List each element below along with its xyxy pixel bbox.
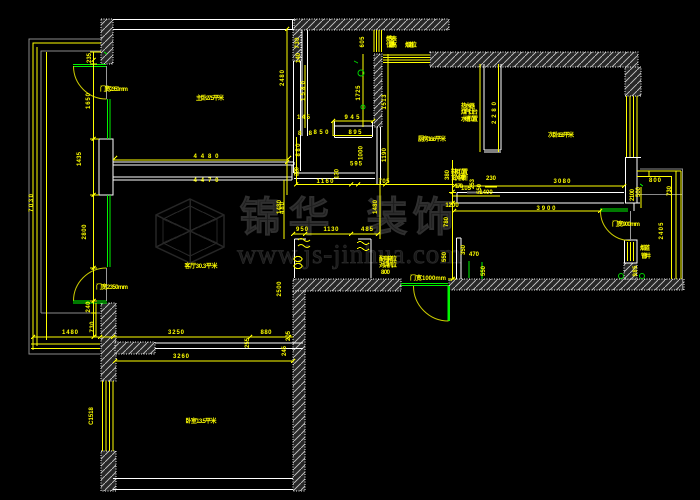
svg-text:605: 605 (360, 36, 366, 48)
svg-text:595: 595 (350, 162, 363, 168)
svg-text:253: 253 (470, 178, 476, 189)
svg-text:850: 850 (314, 130, 330, 136)
svg-text:240: 240 (86, 301, 92, 313)
svg-text:3080: 3080 (554, 179, 572, 185)
svg-text:配电箱位: 配电箱位 (379, 255, 397, 263)
svg-text:对讲机位: 对讲机位 (379, 261, 397, 269)
svg-text:管井: 管井 (641, 252, 651, 260)
svg-text:950: 950 (296, 227, 309, 233)
svg-text:550: 550 (481, 265, 487, 276)
svg-text:2800: 2800 (82, 224, 88, 240)
svg-text:1000: 1000 (359, 145, 365, 160)
svg-text:880: 880 (261, 330, 273, 336)
svg-text:730: 730 (667, 185, 673, 196)
svg-text:1580: 1580 (301, 80, 307, 101)
svg-text:1480: 1480 (373, 199, 379, 214)
svg-text:锦: 锦 (240, 194, 281, 240)
svg-text:主卧27.5平米: 主卧27.5平米 (196, 94, 224, 102)
svg-text:235: 235 (87, 52, 93, 63)
svg-text:烟道: 烟道 (640, 244, 650, 252)
svg-text:780: 780 (444, 216, 450, 227)
svg-text:www.js-jinhua.com: www.js-jinhua.com (237, 239, 461, 269)
svg-text:华: 华 (289, 194, 330, 240)
svg-text:热水器: 热水器 (461, 102, 476, 110)
svg-text:3900: 3900 (537, 206, 557, 212)
svg-text:烟道位: 烟道位 (405, 41, 417, 49)
svg-text:鞋柜位置: 鞋柜位置 (451, 168, 468, 176)
svg-text:245: 245 (282, 345, 288, 356)
svg-text:1435: 1435 (77, 151, 83, 166)
svg-text:255: 255 (245, 337, 251, 348)
svg-text:1200: 1200 (445, 203, 459, 209)
svg-text:1190: 1190 (382, 147, 388, 162)
svg-text:800: 800 (649, 178, 662, 184)
svg-text:230: 230 (486, 176, 497, 182)
svg-text:次卧15.6平米: 次卧15.6平米 (548, 131, 574, 139)
svg-text:卧室13.5平米: 卧室13.5平米 (186, 417, 217, 425)
svg-text:140: 140 (296, 52, 302, 63)
svg-text:位置高: 位置高 (386, 41, 397, 49)
svg-text:水槽位置: 水槽位置 (461, 115, 478, 123)
svg-text:门宽1000mm: 门宽1000mm (410, 274, 446, 282)
svg-text:2405: 2405 (659, 222, 665, 240)
svg-text:985: 985 (633, 265, 639, 277)
svg-text:1480: 1480 (277, 199, 283, 214)
svg-text:470: 470 (469, 252, 480, 258)
svg-text:130: 130 (335, 168, 341, 179)
svg-text:800: 800 (381, 270, 391, 276)
svg-text:1725: 1725 (356, 85, 362, 101)
svg-text:玄关隔断: 玄关隔断 (451, 174, 468, 182)
svg-text:730: 730 (295, 37, 301, 49)
svg-text:1650: 1650 (86, 92, 92, 109)
svg-text:945: 945 (345, 115, 361, 121)
svg-text:550: 550 (442, 251, 448, 262)
svg-text:1513: 1513 (382, 94, 388, 110)
svg-text:2500: 2500 (277, 281, 283, 297)
svg-text:170: 170 (455, 184, 464, 190)
svg-text:145: 145 (297, 115, 311, 121)
svg-text:饰: 饰 (413, 194, 454, 240)
svg-text:燃气表: 燃气表 (386, 35, 398, 43)
svg-text:220: 220 (295, 166, 301, 176)
svg-text:7030: 7030 (29, 193, 35, 212)
svg-text:1160: 1160 (317, 179, 335, 185)
svg-text:2480: 2480 (280, 69, 286, 86)
svg-text:3250: 3250 (168, 330, 185, 336)
svg-text:350: 350 (461, 244, 467, 255)
svg-text:煤气灶台: 煤气灶台 (461, 108, 478, 116)
svg-text:485: 485 (361, 227, 374, 233)
svg-text:880: 880 (296, 143, 302, 157)
svg-text:895: 895 (349, 130, 363, 136)
svg-text:2100: 2100 (630, 188, 636, 201)
svg-text:门宽900mm: 门宽900mm (612, 220, 640, 228)
svg-text:205: 205 (286, 330, 292, 341)
svg-text:500: 500 (636, 186, 642, 197)
svg-text:1130: 1130 (324, 227, 340, 233)
svg-text:730: 730 (90, 321, 96, 333)
svg-text:客厅30.3平米: 客厅30.3平米 (184, 262, 218, 270)
svg-text:厨房16.6平米: 厨房16.6平米 (418, 135, 446, 143)
svg-text:550: 550 (477, 183, 483, 194)
svg-text:C1518: C1518 (89, 407, 95, 425)
svg-text:1480: 1480 (62, 330, 79, 336)
svg-text:3260: 3260 (173, 354, 190, 360)
svg-text:门宽2350mm: 门宽2350mm (96, 283, 128, 291)
svg-text:门宽2350mm: 门宽2350mm (100, 85, 128, 93)
